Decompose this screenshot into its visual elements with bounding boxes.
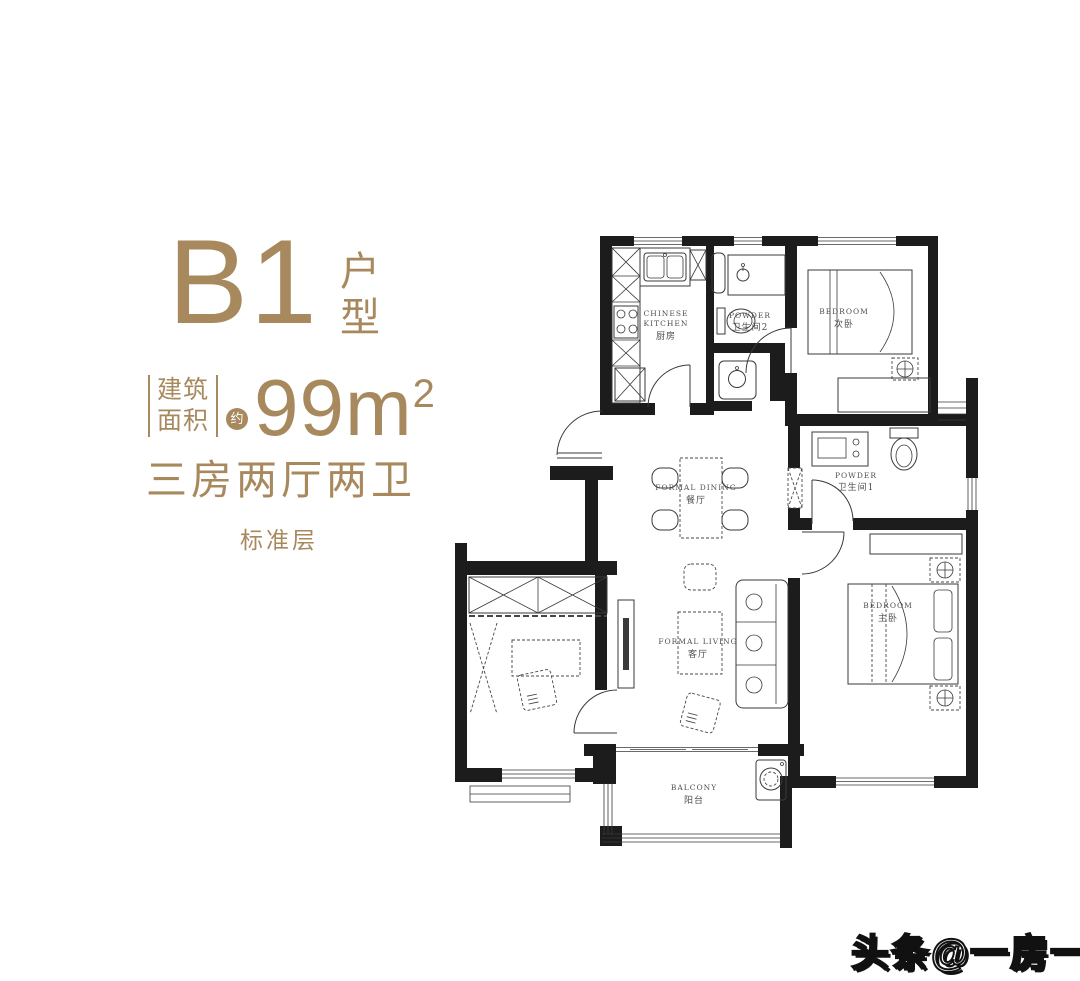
page: { "page": {"background": "#ffffff"}, "co… <box>0 0 1080 981</box>
area-row: 建筑 面积 约 99m2 <box>148 372 436 442</box>
area-prefix-line1: 建筑 <box>157 375 209 406</box>
bedroom2-furniture <box>808 270 930 412</box>
master-label-en: BEDROOM <box>863 601 913 610</box>
master-furniture <box>848 534 962 710</box>
living-label-zh: 客厅 <box>688 648 708 660</box>
window-powder2-top <box>734 236 762 246</box>
kitchen-shaft <box>690 250 706 280</box>
area-unit: m <box>345 363 413 452</box>
window-room3-bottom <box>502 768 575 782</box>
room3-chair <box>517 669 558 711</box>
toilet-powder1 <box>890 428 918 470</box>
area-prefix: 建筑 面积 <box>148 375 218 437</box>
floor-label: 标准层 <box>148 521 410 555</box>
windows <box>470 236 978 842</box>
stove <box>614 306 638 338</box>
tv-cabinet <box>618 600 634 688</box>
bedroom2-label-zh: 次卧 <box>834 318 854 330</box>
shaft-powder1 <box>788 468 802 508</box>
powder1-label-en: POWDER <box>835 471 877 480</box>
window-kitchen-top <box>634 236 682 246</box>
balcony-label-zh: 阳台 <box>684 794 704 806</box>
powder1-label-zh: 卫生间1 <box>838 481 875 493</box>
sofa <box>736 580 788 708</box>
unit-type-label: 户型 <box>327 250 385 342</box>
armchair <box>679 692 721 734</box>
area-exponent: 2 <box>413 372 436 416</box>
area-number: 99 <box>254 363 345 452</box>
nightstand-bottom <box>930 686 960 710</box>
living-label-en: FORMAL LIVING <box>658 637 737 646</box>
room3-door <box>574 690 617 733</box>
layout-description: 三房两厅两卫 <box>146 446 416 506</box>
unit-code: B1 <box>168 222 319 342</box>
floor-plan-svg: CHINESE KITCHEN 厨房 POWDER 卫生间2 BEDROOM 次… <box>440 228 990 858</box>
balcony-slider-door <box>616 748 758 752</box>
master-label-zh: 主卧 <box>878 612 898 624</box>
watermark: 头条@一房一万 <box>851 922 1080 977</box>
kitchen-label-en1: CHINESE <box>644 309 689 318</box>
powder2-label-zh: 卫生间2 <box>732 321 769 333</box>
living-furniture <box>618 564 788 734</box>
bedroom2-label-en: BEDROOM <box>819 307 869 316</box>
nightstand-top <box>930 558 960 582</box>
window-right-wall <box>966 478 978 510</box>
kitchen-label-zh: 厨房 <box>656 330 676 342</box>
powder1-fixtures <box>788 428 918 508</box>
kitchen-label-en2: KITCHEN <box>644 319 689 328</box>
powder2-label-en: POWDER <box>729 311 771 320</box>
hall-vanity <box>719 361 756 399</box>
entry-door <box>557 411 602 458</box>
dining-label-zh: 餐厅 <box>686 494 706 506</box>
kitchen-sink <box>640 248 690 286</box>
room3-furniture <box>469 577 607 714</box>
area-prefix-line2: 面积 <box>157 406 209 437</box>
kitchen-door <box>648 365 690 407</box>
window-master-bottom <box>836 776 934 788</box>
floor-plan: CHINESE KITCHEN 厨房 POWDER 卫生间2 BEDROOM 次… <box>440 228 990 858</box>
approx-badge: 约 <box>226 408 248 430</box>
balcony-label-en: BALCONY <box>671 783 717 792</box>
master-door <box>788 530 844 578</box>
ac-ledge-bottom-left <box>470 786 570 802</box>
window-bedroom2-top <box>818 236 896 246</box>
area-value: 99m2 <box>254 372 436 444</box>
dining-label-en: FORMAL DINING <box>655 483 737 492</box>
